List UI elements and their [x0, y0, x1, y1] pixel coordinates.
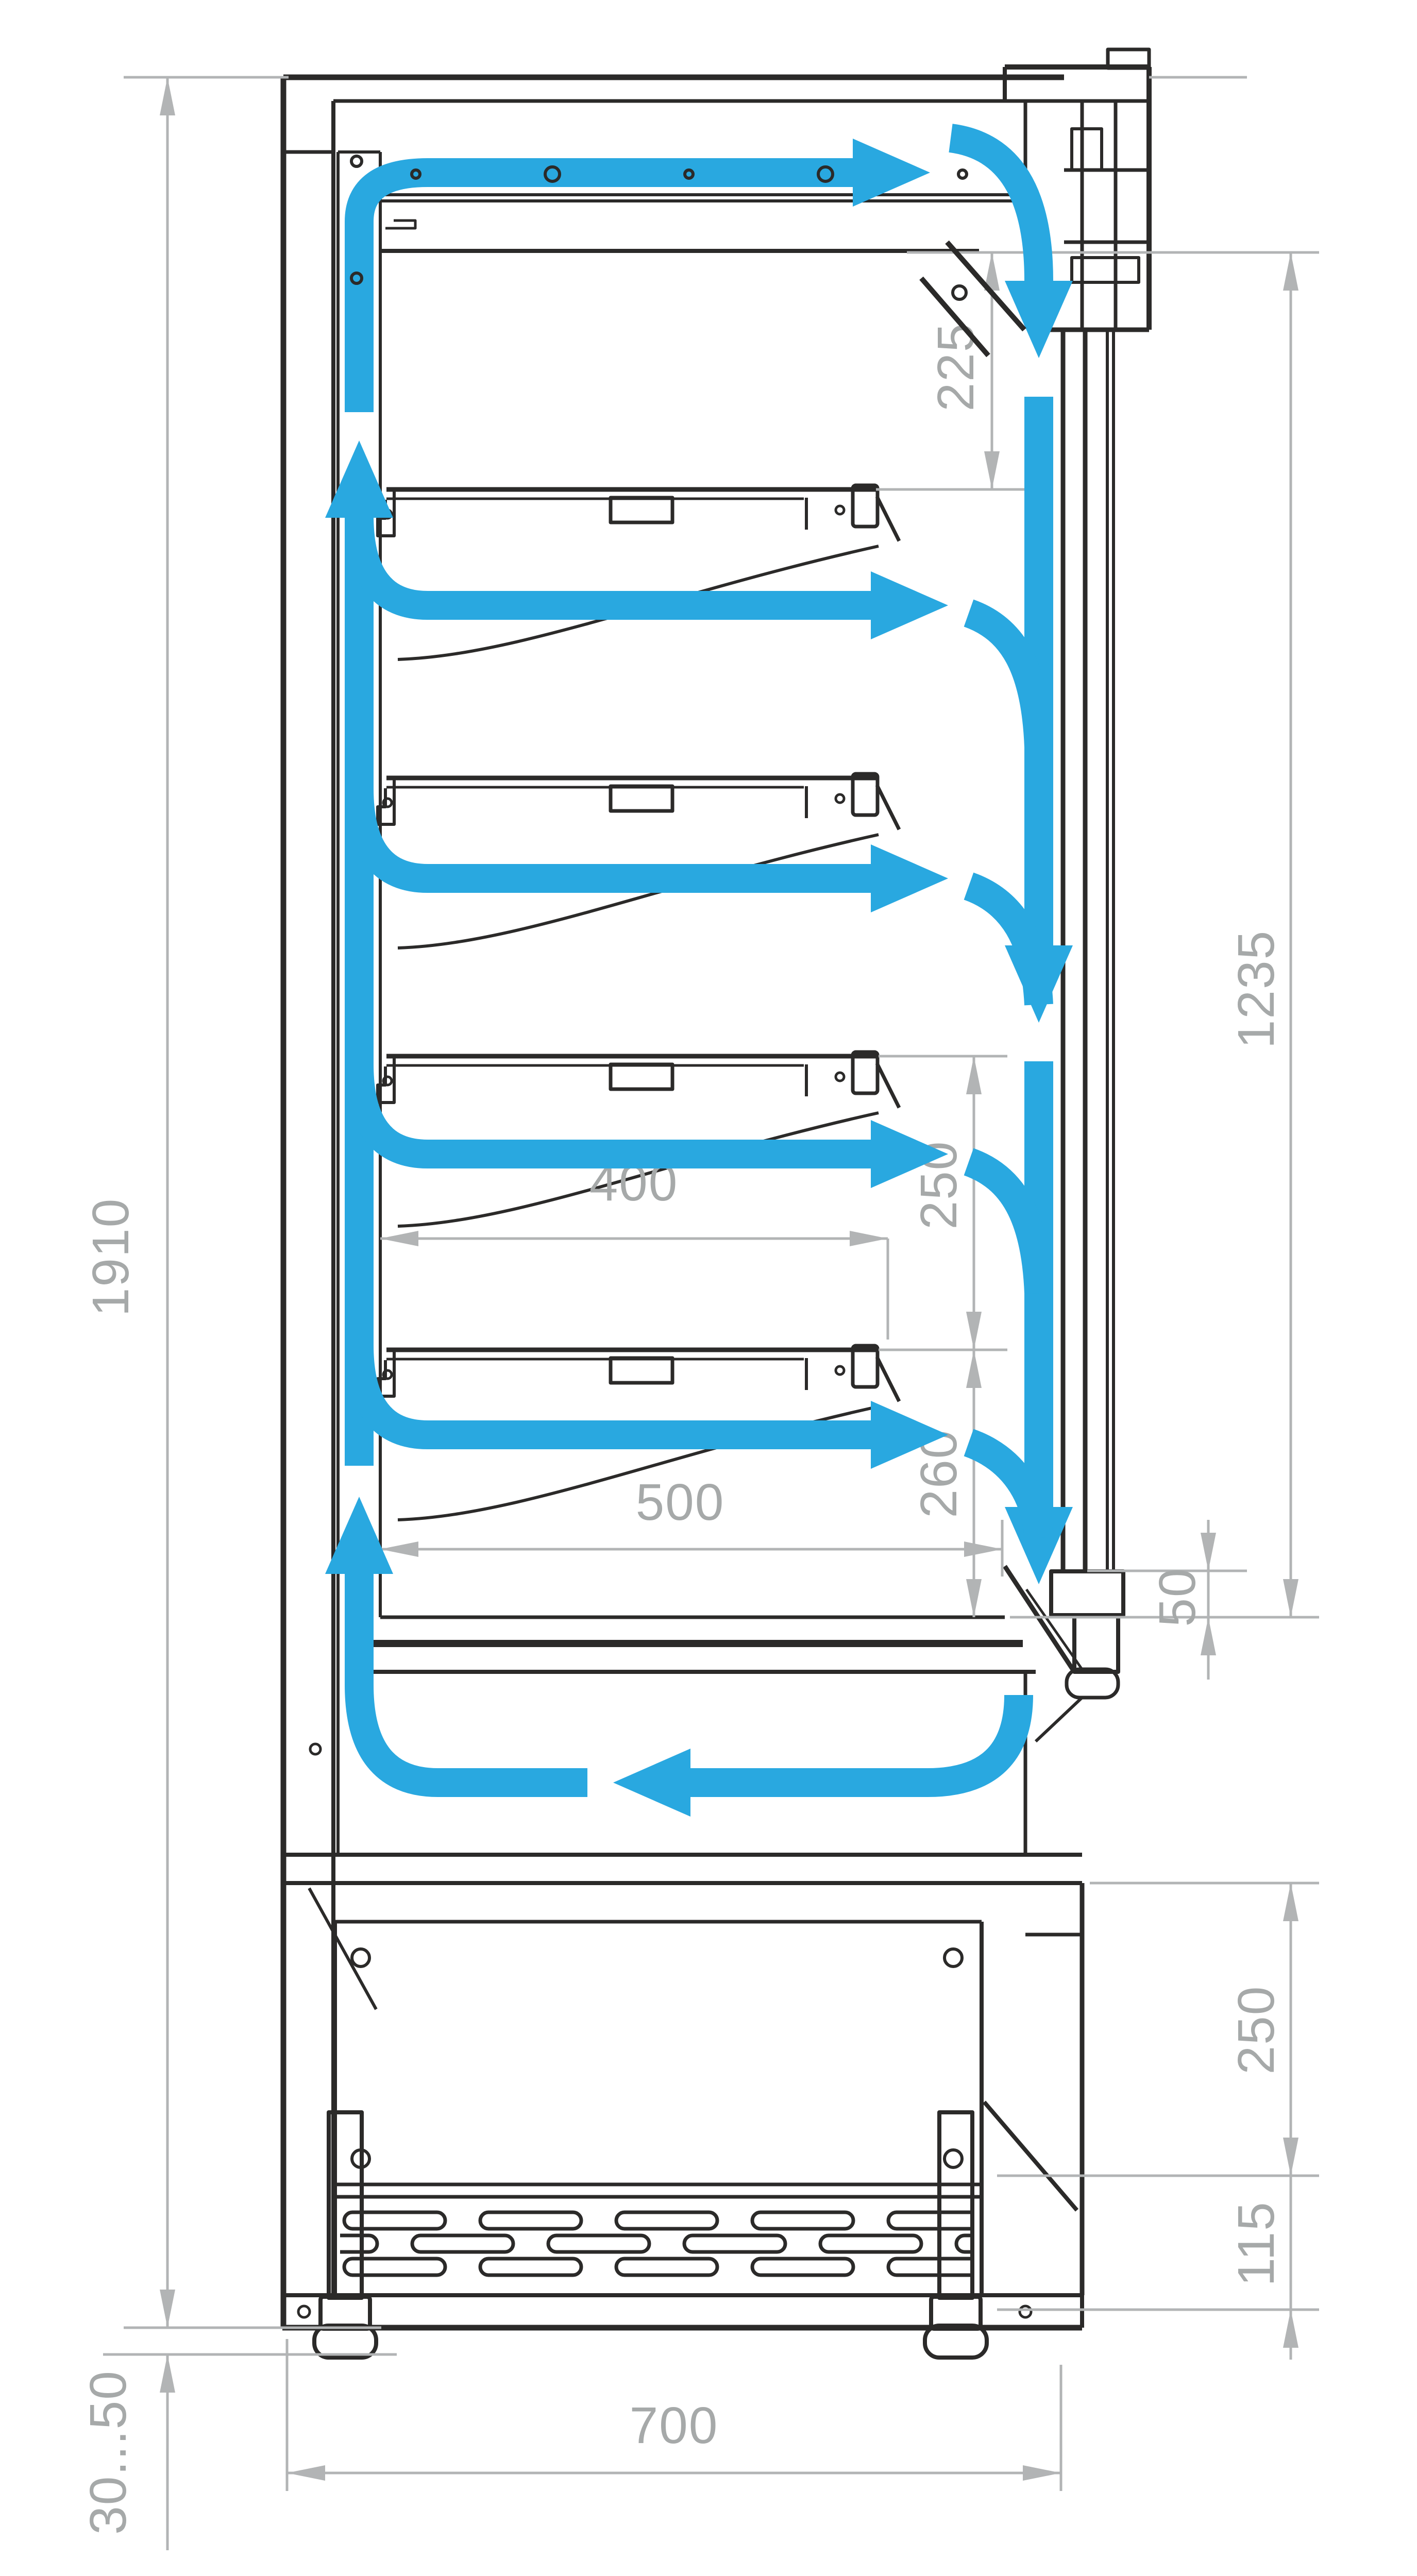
- arrow-up-icon: [966, 1350, 982, 1388]
- arrow-up-icon: [160, 2354, 175, 2393]
- airflow-bottom-return: [613, 1695, 1019, 1817]
- dim-label-250-machine: 250: [1227, 1986, 1285, 2075]
- hook-hole: [383, 799, 392, 807]
- door-bottom-rail: [1051, 1571, 1123, 1615]
- arrow-down-icon: [1283, 1579, 1298, 1617]
- arrow-down-icon: [966, 1579, 982, 1617]
- arrow-left-icon: [287, 2465, 325, 2481]
- jet-band-3: [359, 1064, 871, 1154]
- dim-label-225: 225: [927, 323, 985, 412]
- dim-machine-height-250: 250: [997, 1883, 1319, 2176]
- left-step-diagonal: [309, 1888, 376, 2009]
- dim-label-30-50: 30...50: [79, 2370, 137, 2535]
- arrow-up-icon: [1283, 2310, 1298, 2348]
- compartment-diagonal: [984, 2102, 1077, 2210]
- hook-hole: [383, 1370, 392, 1379]
- arrow-left-icon: [380, 1231, 418, 1246]
- ventilation-grille: [340, 2209, 974, 2278]
- arrow-up-icon: [160, 77, 175, 115]
- base-screw-1: [298, 2306, 310, 2317]
- shelf-mid-bracket: [611, 786, 672, 811]
- dim-foot-range-30-50: 30...50: [79, 2354, 397, 2550]
- arrow-left-icon: [380, 1541, 418, 1557]
- machine-compartment: [282, 1883, 1082, 2328]
- dim-label-115: 115: [1227, 2201, 1285, 2286]
- shelf-1: [378, 485, 899, 659]
- dim-deck-gap-50: 50: [1087, 1520, 1247, 1680]
- shelf-2: [378, 774, 899, 948]
- hook-hole: [383, 1077, 392, 1085]
- riser-top-band: [359, 173, 853, 412]
- dim-label-50: 50: [1149, 1567, 1206, 1626]
- rail-hole: [836, 1366, 844, 1375]
- duct-hole-5: [958, 170, 967, 178]
- dim-overall-depth-700: 700: [287, 2339, 1061, 2491]
- dim-deck-depth-500: 500: [380, 1473, 1002, 1577]
- jet-band-1: [359, 515, 871, 605]
- airflow-arrow-right-icon: [853, 139, 930, 207]
- dim-vent-height-115: 115: [997, 2176, 1319, 2360]
- dim-label-1235: 1235: [1227, 930, 1285, 1048]
- riser-lower-band: [359, 1574, 587, 1783]
- base-screw-2: [1020, 2306, 1031, 2317]
- panel-screw-2: [944, 1949, 962, 1967]
- shelf-mid-bracket: [611, 498, 672, 522]
- airflow-arrow-left-icon: [613, 1749, 690, 1817]
- shelf-mid-bracket: [611, 1358, 672, 1383]
- tag-clip-pin: [877, 1063, 899, 1108]
- door-sill-line: [1036, 1698, 1082, 1741]
- shelves: [378, 485, 899, 1520]
- dim-label-700: 700: [630, 2397, 719, 2454]
- airflow-shelf-jets: [359, 515, 948, 1469]
- arrow-up-icon: [1283, 1883, 1298, 1921]
- dim-label-1910: 1910: [82, 1198, 140, 1316]
- arrow-down-icon: [1201, 1533, 1216, 1571]
- outlet-vane-pivot: [953, 286, 966, 299]
- door-bottom-block: [1074, 1615, 1118, 1672]
- drawing-canvas: 1910 30...50 700 225: [0, 0, 1417, 2576]
- arrow-down-icon: [966, 1312, 982, 1350]
- arrow-up-icon: [1283, 252, 1298, 291]
- dimension-annotations: 1910 30...50 700 225: [79, 77, 1319, 2550]
- airflow-arrow-right-icon: [871, 844, 948, 912]
- airflow-rear-riser: [325, 139, 930, 1783]
- wall-hole-a: [310, 1744, 320, 1754]
- return-band-right: [690, 1695, 1019, 1783]
- arrow-down-icon: [160, 2290, 175, 2328]
- top-shelf-rail-hook: [385, 221, 415, 228]
- dim-opening-1235: 1235: [1149, 77, 1298, 1617]
- rail-hole: [836, 506, 844, 514]
- panel-screw-1: [352, 1949, 369, 1967]
- rail-hole: [836, 1073, 844, 1081]
- arrow-right-icon: [850, 1231, 888, 1246]
- jet-band-2: [359, 788, 871, 878]
- dim-canopy-gap-225: 225: [876, 252, 1319, 489]
- duct-wall-hole-top: [351, 156, 362, 166]
- shelf-mid-bracket: [611, 1064, 672, 1089]
- arrow-right-icon: [1023, 2465, 1061, 2481]
- dim-shelf-spacing-250: 250: [879, 1056, 1007, 1350]
- arrow-right-icon: [964, 1541, 1002, 1557]
- tag-clip-pin: [877, 497, 899, 541]
- arrow-down-icon: [984, 451, 1000, 489]
- rail-hole: [836, 794, 844, 803]
- panel-screw-4: [944, 2150, 962, 2167]
- dim-label-500: 500: [636, 1473, 725, 1531]
- dim-shelf-depth-400: 400: [380, 1154, 888, 1340]
- hinge-block: [1072, 129, 1102, 170]
- arrow-down-icon: [1283, 2138, 1298, 2176]
- tag-clip-pin: [877, 1357, 899, 1401]
- airflow-arrow-right-icon: [871, 571, 948, 639]
- arrow-up-icon: [966, 1056, 982, 1094]
- tag-clip-pin: [877, 785, 899, 829]
